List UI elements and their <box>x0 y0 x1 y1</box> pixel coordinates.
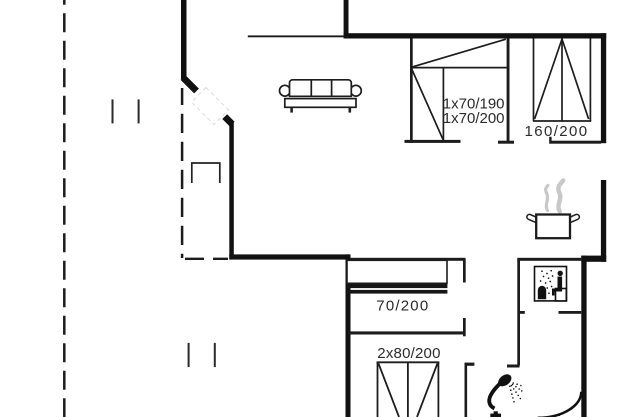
svg-text:70/200: 70/200 <box>376 298 429 315</box>
svg-text:2x80/200: 2x80/200 <box>377 345 440 362</box>
svg-text:160/200: 160/200 <box>525 123 589 140</box>
svg-text:1x70/200: 1x70/200 <box>443 110 505 127</box>
